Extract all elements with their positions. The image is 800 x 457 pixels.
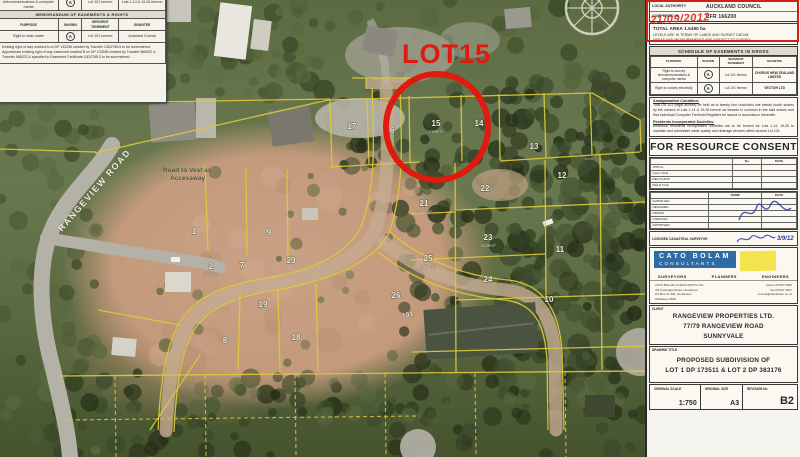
memo-row-shown: A <box>59 30 82 42</box>
lot-number-label: 11 <box>556 245 565 254</box>
lot-number-label: 1 <box>192 227 197 236</box>
lot-number-label: 25 <box>424 254 433 263</box>
ease-col-purpose: PURPOSE <box>651 57 698 68</box>
lot-number-label: 17 <box>348 122 357 131</box>
lot-area-label: 4169m² <box>428 129 444 134</box>
revision-value: B2 <box>780 395 794 407</box>
easement-memo-table: rights of way, water, telecommunications… <box>0 0 166 64</box>
ease-r1-shown: A <box>697 67 719 82</box>
surveyor-label: LICENSED CADASTRAL SURVEYOR <box>650 237 735 241</box>
local-authority-label: LOCAL AUTHORITY <box>650 2 704 11</box>
easements-schedule-table: PURPOSE SHOWN SERVIENT TENEMENT GRANTEE … <box>650 56 797 95</box>
lot-number-label: 22 <box>481 184 490 193</box>
building-roof <box>504 7 532 29</box>
building-roof <box>171 257 180 262</box>
road-vest-note-line2: Accessway <box>170 175 205 182</box>
client-name: RANGEVIEW PROPERTIES LTD. <box>650 312 797 322</box>
ease-r1-grantee: CHORUS NEW ZEALAND LIMITED <box>753 67 797 82</box>
ease-r2-shown: A <box>697 83 719 95</box>
building-roof <box>585 395 615 417</box>
file-reference-box: No DATE JOB No CALC FILE REF PLANS FIELD… <box>649 157 798 190</box>
memo-partial-shown: A <box>59 0 82 11</box>
firm-address: CATO BOLAM CONSULTANTS LTD 4/3 Cartwrigh… <box>655 283 703 301</box>
building-roof <box>165 272 191 292</box>
building-roof <box>250 19 272 51</box>
size-cell: ORIGINAL SIZE A3 <box>701 385 743 409</box>
discipline-planners: PLANNERS <box>712 274 737 279</box>
discipline-engineers: ENGINEERS <box>762 274 789 279</box>
easement-marker-a-icon: A <box>66 32 75 41</box>
ease-r1-servient: Lot 101 hereon <box>719 67 753 82</box>
firm-name-line2: CONSULTANTS <box>659 261 731 266</box>
lot-number-label: 9 <box>267 228 272 237</box>
memo-header: MEMORANDUM OF EASEMENTS & RIGHTS <box>0 11 166 19</box>
easement-memorandum-box: rights of way, water, telecommunications… <box>0 0 167 103</box>
lot-area-label: 4192m² <box>416 209 432 214</box>
ease-col-grantee: GRANTEE <box>753 57 797 68</box>
lot-number-label: 15 <box>432 119 441 128</box>
scale-size-revision-strip: ORIGINAL SCALE 1:750 ORIGINAL SIZE A3 RE… <box>649 384 798 410</box>
firm-phones: phone 09 837 0966 fax 09 837 5947 consul… <box>758 283 792 301</box>
title-block-sidebar: LOCAL AUTHORITY AUCKLAND COUNCIL COMPRIS… <box>645 0 800 457</box>
lot-number-label: 21 <box>420 199 429 208</box>
signature-ink <box>735 233 777 245</box>
lot-number-label: 10 <box>545 295 554 304</box>
client-address: 77/79 RANGEVIEW ROAD <box>650 322 797 332</box>
compass-emblem <box>566 0 618 34</box>
yellow-highlighter-mark <box>740 251 776 272</box>
lot-number-label: 7 <box>240 261 245 270</box>
memo-partial-servient: Lot 101 hereon <box>82 0 119 11</box>
lot-number-label: 20 <box>287 256 296 265</box>
size-value: A3 <box>730 400 739 407</box>
memo-col-grantee: GRANTEE <box>119 19 166 31</box>
surveyor-signature-box: LICENSED CADASTRAL SURVEYOR 3/9/12 <box>649 231 798 246</box>
revision-cell: REVISION No B2 <box>743 385 797 409</box>
lot-number-label: 19 <box>259 300 268 309</box>
memo-partial-purpose: rights of way, water, telecommunications… <box>0 0 59 11</box>
building-roof <box>542 218 553 226</box>
easement-marker-a-icon: A <box>66 0 75 7</box>
memo-col-purpose: PURPOSE <box>0 19 59 31</box>
lot-number-label: 8 <box>223 336 228 345</box>
drawing-title-line2: LOT 1 DP 173511 & LOT 2 DP 383176 <box>650 366 797 376</box>
amalgamation-text: That Lot 101 (legal access) be held as t… <box>650 103 797 119</box>
file-reference-table: No DATE JOB No CALC FILE REF PLANS FIELD… <box>650 158 797 189</box>
lot-number-label: 12 <box>558 171 567 180</box>
easement-marker-a-icon: A <box>704 84 713 93</box>
building-roof <box>111 337 136 357</box>
revision-label: REVISION No <box>745 386 795 391</box>
approvals-box: NAME DATE SURVEYED DESIGNED DRAWN CHECKE… <box>649 191 798 230</box>
memo-partial-grantee: Lots 1-14 & 19-26 hereon <box>119 0 166 11</box>
scale-label: ORIGINAL SCALE <box>652 386 698 391</box>
drawing-title-box: DRAWING TITLE PROPOSED SUBDIVISION OF LO… <box>649 346 798 383</box>
memo-row-purpose: Right to drain water <box>0 30 59 42</box>
road-vest-note-line1: Road to Vest as <box>163 167 212 174</box>
easements-schedule-title: SCHEDULE OF EASEMENTS IN GROSS <box>650 47 797 56</box>
building-roof <box>302 208 318 220</box>
easement-row: Right to convey electricity A Lot 101 he… <box>651 83 797 95</box>
scanned-subdivision-plan: { "annotations": { "lot_callout": "LOT15… <box>0 0 800 457</box>
resource-consent-banner: FOR RESOURCE CONSENT <box>650 139 797 155</box>
lot-number-label: 14 <box>475 119 484 128</box>
memo-col-servient: SERVIENT TENEMENT <box>82 19 119 31</box>
memo-col-shown: SHOWN <box>59 19 82 31</box>
lot-number-label: 23 <box>484 233 493 242</box>
consent-banner-box: FOR RESOURCE CONSENT <box>649 138 798 156</box>
lot-number-label: 2 <box>209 262 214 271</box>
lot-area-label: 4105m² <box>203 272 219 277</box>
lot-number-label: 13 <box>530 142 539 151</box>
ease-r2-purpose: Right to convey electricity <box>651 83 698 95</box>
handwritten-date: 3/9/12 <box>777 236 794 242</box>
approval-row-label: APPROVED <box>651 223 709 229</box>
easement-marker-a-icon: A <box>704 70 713 79</box>
size-label: ORIGINAL SIZE <box>703 386 740 391</box>
firm-box: CATO BOLAM CONSULTANTS SURVEYORS PLANNER… <box>649 247 798 304</box>
lot-number-label: 26 <box>392 291 401 300</box>
cato-bolam-logo: CATO BOLAM CONSULTANTS <box>654 251 736 268</box>
easements-schedule-box: SCHEDULE OF EASEMENTS IN GROSS PURPOSE S… <box>649 46 798 96</box>
building-roof <box>196 98 216 138</box>
societies-text: Individual Residents Incorporated Societ… <box>650 124 797 135</box>
ease-col-servient: SERVIENT TENEMENT <box>719 57 753 68</box>
ease-r2-grantee: VECTOR LTD <box>753 83 797 95</box>
approvals-table: NAME DATE SURVEYED DESIGNED DRAWN CHECKE… <box>650 192 797 229</box>
access-lot-101-label: 101 <box>401 311 414 320</box>
discipline-surveyors: SURVEYORS <box>658 274 687 279</box>
memo-row-grantee: Auckland Council <box>119 30 166 42</box>
client-box: CLIENT RANGEVIEW PROPERTIES LTD. 77/79 R… <box>649 305 798 345</box>
lot15-callout-text: LOT15 <box>402 39 491 69</box>
total-area-text: TOTAL AREA 1.5490 ha <box>650 25 797 32</box>
ease-col-shown: SHOWN <box>697 57 719 68</box>
scale-cell: ORIGINAL SCALE 1:750 <box>650 385 701 409</box>
scale-value: 1:750 <box>679 400 697 407</box>
area-box: TOTAL AREA 1.5490 ha LEVELS ARE IN TERMS… <box>649 23 798 45</box>
building-roof <box>149 101 198 142</box>
client-suburb: SUNNYVALE <box>650 332 797 342</box>
memo-note-2: Appurtenant existing right of way easeme… <box>2 50 162 61</box>
memo-row-servient: Lot 101 hereon <box>82 30 119 42</box>
lot-number-label: 24 <box>484 275 493 284</box>
file-row-label: FIELD FILE <box>651 183 733 189</box>
easement-row: Right to convey telecommunications & com… <box>651 67 797 82</box>
drawing-title-line1: PROPOSED SUBDIVISION OF <box>650 356 797 366</box>
survey-note: AREAS AND MEASUREMENTS ARE SUBJECT TO SU… <box>650 37 797 42</box>
lot-area-label: 2539m² <box>480 243 496 248</box>
building-roof <box>214 2 252 59</box>
conditions-box: Amalgamation Condition: That Lot 101 (le… <box>649 97 798 137</box>
lot-area-label: 2570m² <box>420 264 436 269</box>
ease-r1-purpose: Right to convey telecommunications & com… <box>651 67 698 82</box>
firm-name-line1: CATO BOLAM <box>659 253 731 261</box>
local-authority-value: AUCKLAND COUNCIL <box>704 2 764 11</box>
lot-number-label: 18 <box>292 333 301 342</box>
ease-r2-servient: Lot 101 hereon <box>719 83 753 95</box>
